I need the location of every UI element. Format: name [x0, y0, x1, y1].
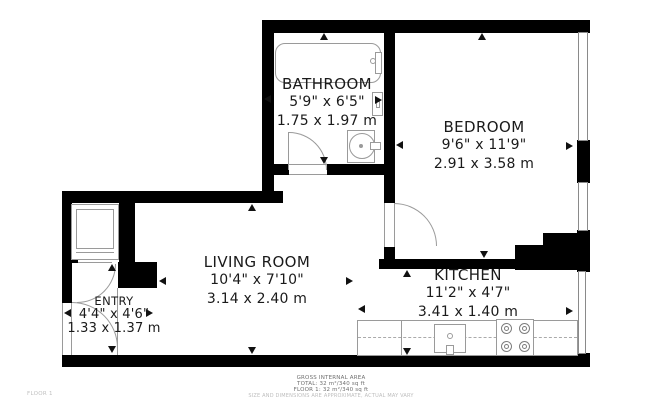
window-bedroom-lower [578, 182, 588, 231]
dim-arrow-right-livingroom [346, 277, 353, 285]
footer-disclaimer: SIZE AND DIMENSIONS ARE APPROXIMATE, ACT… [248, 393, 413, 399]
window-bedroom-upper [578, 32, 588, 141]
bathroom-door-leaf [288, 132, 289, 170]
sink-spout-icon [446, 345, 454, 355]
room-dim-imperial: 11'2" x 4'7" [418, 284, 518, 303]
bathroom-door-arrow [320, 157, 328, 164]
bathtub-faucet-icon [375, 52, 382, 74]
stove-burner-icon [501, 323, 512, 334]
dim-arrow-left-livingroom [159, 277, 166, 285]
wall-bottom [62, 355, 590, 367]
dim-arrow-down-entry [108, 346, 116, 353]
wall-bathroom-bedroom-divider [384, 20, 395, 203]
kitchen-counter [357, 320, 578, 356]
wall-livingroom-top [62, 191, 283, 203]
dim-arrow-left-kitchen [358, 305, 365, 313]
wall-right-block [577, 230, 590, 272]
room-name: BEDROOM [434, 119, 534, 136]
toilet-flush-icon [370, 142, 381, 150]
bathtub-drain-icon [370, 58, 376, 64]
room-dim-metric: 1.33 x 1.37 m [67, 322, 160, 336]
floor-corner-label: FLOOR 1 [27, 391, 53, 397]
room-label-bedroom: BEDROOM 9'6" x 11'9" 2.91 x 3.58 m [434, 119, 534, 174]
sink-faucet-icon [447, 333, 453, 339]
room-label-entry: ENTRY 4'4" x 4'6" 1.33 x 1.37 m [67, 295, 160, 335]
window-kitchen [578, 271, 586, 354]
toilet-drain-icon [359, 144, 363, 148]
room-dim-imperial: 9'6" x 11'9" [434, 136, 534, 155]
bathroom-door-swing [289, 132, 327, 170]
room-label-livingroom: LIVING ROOM 10'4" x 7'10" 3.14 x 2.40 m [204, 254, 310, 309]
room-dim-imperial: 5'9" x 6'5" [277, 93, 377, 112]
wall-right-mid [577, 140, 590, 183]
counter-dashed-line [358, 337, 577, 338]
room-dim-metric: 1.75 x 1.97 m [277, 112, 377, 131]
wall-closet-right [119, 203, 135, 263]
dim-arrow-up-bedroom [478, 33, 486, 40]
gross-internal-area-note: GROSS INTERNAL AREA TOTAL: 32 m²/340 sq … [248, 375, 413, 399]
dim-arrow-down-kitchen [403, 348, 411, 355]
room-label-kitchen: KITCHEN 11'2" x 4'7" 3.41 x 1.40 m [418, 267, 518, 322]
room-name: LIVING ROOM [204, 254, 310, 271]
counter-divider-line [401, 320, 402, 356]
dim-arrow-up-bathroom [320, 33, 328, 40]
room-dim-metric: 2.91 x 3.58 m [434, 155, 534, 174]
dim-arrow-right-bedroom [566, 142, 573, 150]
floor-plan: BATHROOM 5'9" x 6'5" 1.75 x 1.97 m BEDRO… [0, 0, 650, 406]
stove-burner-icon [501, 341, 512, 352]
dim-arrow-down-bedroom [480, 251, 488, 258]
stove-burner-icon [519, 323, 530, 334]
room-dim-imperial: 10'4" x 7'10" [204, 271, 310, 290]
dim-arrow-up-entry [108, 264, 116, 271]
dim-arrow-left-bathroom [264, 95, 271, 103]
entry-closet-inner [76, 209, 114, 249]
room-name: BATHROOM [277, 76, 377, 93]
wall-bathroom-bottom-left [272, 164, 289, 175]
dim-arrow-right-kitchen [566, 307, 573, 315]
entry-closet-shelf-line [76, 252, 114, 253]
room-dim-metric: 3.41 x 1.40 m [418, 303, 518, 322]
stove-burner-icon [519, 341, 530, 352]
wall-bathroom-bottom-right [327, 164, 395, 175]
room-label-bathroom: BATHROOM 5'9" x 6'5" 1.75 x 1.97 m [277, 76, 377, 131]
wall-top [262, 20, 590, 33]
dim-arrow-up-kitchen [403, 270, 411, 277]
room-dim-metric: 3.14 x 2.40 m [204, 290, 310, 309]
dim-arrow-up-livingroom [248, 204, 256, 211]
dim-arrow-left-bedroom [396, 141, 403, 149]
bedroom-door-swing [394, 203, 437, 246]
room-dim-imperial: 4'4" x 4'6" [67, 308, 160, 322]
dim-arrow-down-livingroom [248, 347, 256, 354]
wall-bathroom-left [262, 20, 274, 203]
wall-entry-column [118, 262, 157, 288]
room-name: KITCHEN [418, 267, 518, 284]
